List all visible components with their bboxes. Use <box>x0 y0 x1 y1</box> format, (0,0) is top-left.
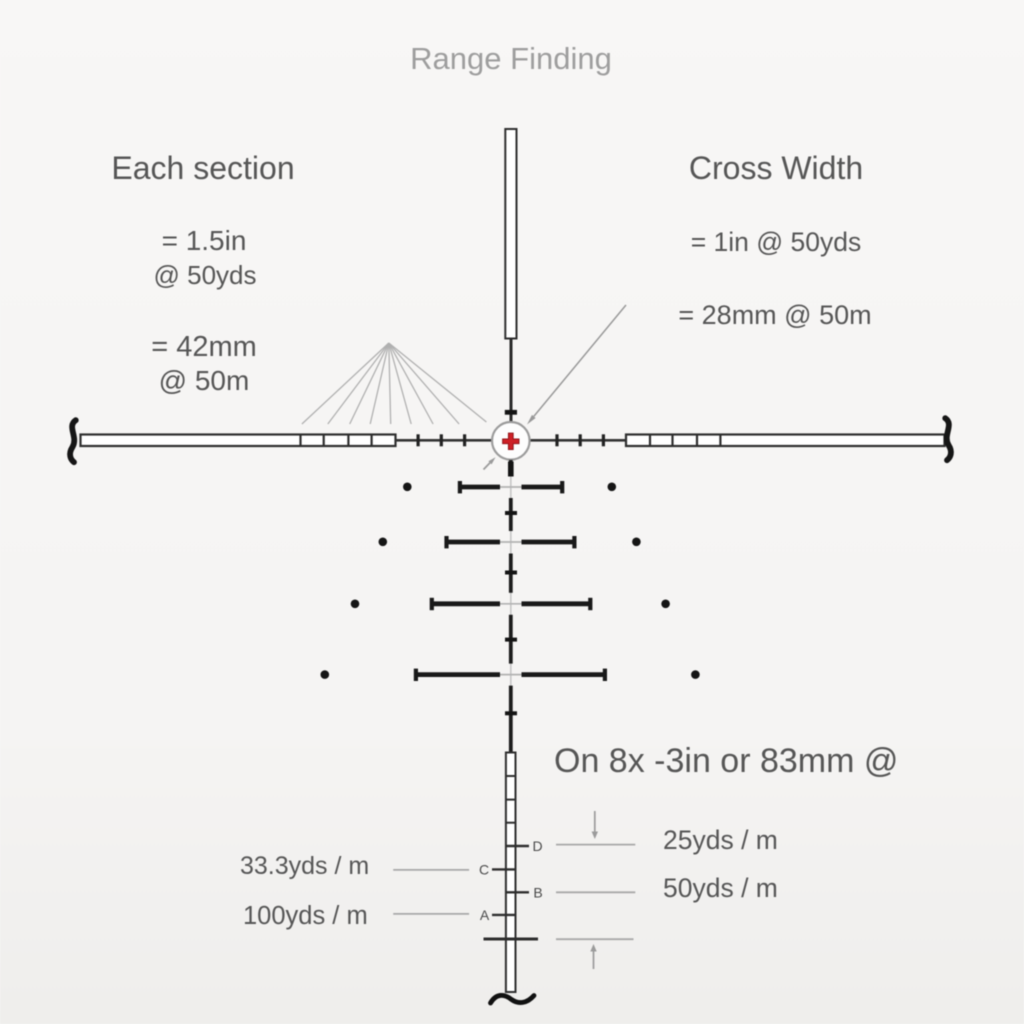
svg-text:= 28mm @ 50m: = 28mm @ 50m <box>678 300 871 330</box>
svg-text:= 42mm: = 42mm <box>151 331 257 363</box>
svg-text:25yds / m: 25yds / m <box>663 825 778 855</box>
svg-text:Cross Width: Cross Width <box>689 150 863 186</box>
svg-text:On 8x -3in or 83mm @: On 8x -3in or 83mm @ <box>554 742 898 780</box>
svg-text:= 1.5in: = 1.5in <box>162 225 247 256</box>
svg-text:Range Finding: Range Finding <box>410 41 612 76</box>
svg-text:Each section: Each section <box>111 150 294 186</box>
svg-text:= 1in @ 50yds: = 1in @ 50yds <box>691 227 862 257</box>
svg-text:A: A <box>480 907 490 923</box>
svg-text:33.3yds / m: 33.3yds / m <box>240 852 369 880</box>
svg-text:50yds / m: 50yds / m <box>663 873 778 903</box>
svg-text:B: B <box>533 884 542 900</box>
svg-text:@ 50m: @ 50m <box>159 365 250 396</box>
svg-text:D: D <box>532 838 542 854</box>
svg-text:C: C <box>479 862 489 878</box>
svg-text:100yds / m: 100yds / m <box>243 902 368 930</box>
svg-text:@ 50yds: @ 50yds <box>154 260 257 290</box>
